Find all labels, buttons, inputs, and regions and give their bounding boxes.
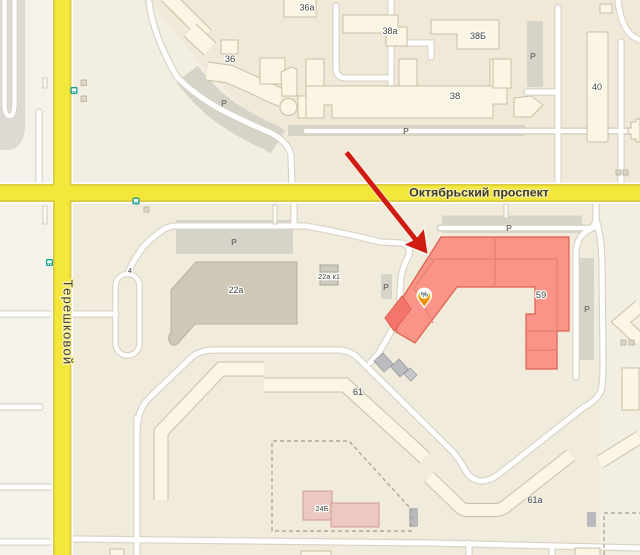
svg-text:22а к1: 22а к1 [318,272,340,281]
svg-text:38Б: 38Б [470,31,486,41]
svg-text:36а: 36а [299,3,314,13]
svg-text:Терешковой: Терешковой [61,280,76,366]
svg-text:P: P [584,304,590,314]
svg-text:38: 38 [450,91,461,102]
svg-text:24Б: 24Б [315,504,328,513]
svg-text:Октябрьский проспект: Октябрьский проспект [409,186,549,200]
svg-text:P: P [506,223,512,233]
svg-text:P: P [530,51,536,61]
svg-text:4: 4 [128,266,132,275]
svg-text:61: 61 [353,387,363,397]
svg-text:59: 59 [536,290,547,301]
svg-text:40: 40 [592,82,602,92]
svg-text:P: P [221,98,227,108]
svg-text:61а: 61а [527,495,542,505]
svg-text:36: 36 [225,54,236,65]
svg-text:P: P [403,126,409,136]
svg-text:38а: 38а [382,26,397,36]
svg-text:P: P [383,282,389,292]
svg-text:22а: 22а [229,285,244,295]
svg-text:P: P [231,237,237,247]
